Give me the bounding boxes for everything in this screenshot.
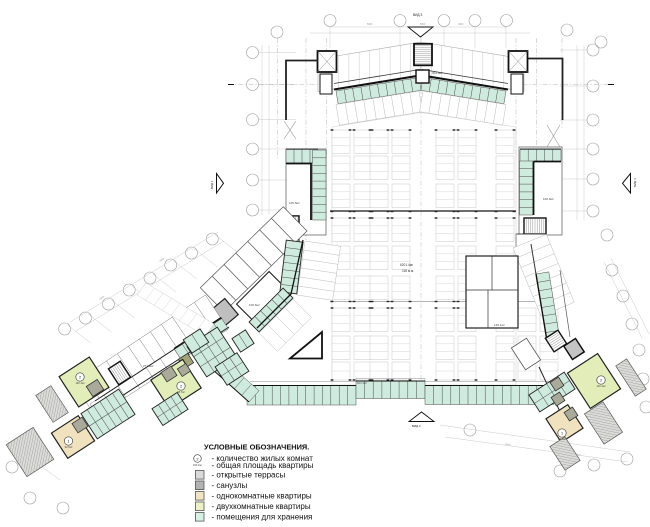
svg-text:624.3м²: 624.3м² [357, 381, 367, 385]
svg-text:- открытые террасы: - открытые террасы [212, 471, 286, 480]
svg-text:5000: 5000 [420, 23, 426, 26]
svg-text:ВИД 1: ВИД 1 [210, 180, 214, 189]
svg-text:2: 2 [180, 385, 182, 389]
svg-text:- помещения для хранения: - помещения для хранения [212, 513, 313, 522]
svg-text:- санузлы: - санузлы [212, 481, 248, 490]
svg-text:100.1м²: 100.1м² [193, 463, 202, 467]
svg-text:- двухкомнатные квартиры: - двухкомнатные квартиры [212, 502, 311, 511]
svg-text:- общая площадь квартиры: - общая площадь квартиры [212, 461, 314, 470]
svg-text:3200: 3200 [458, 23, 464, 26]
svg-text:1: 1 [67, 440, 69, 444]
svg-text:140.4м²: 140.4м² [596, 384, 605, 388]
svg-text:271.2м²: 271.2м² [143, 364, 154, 368]
svg-text:98.7м²: 98.7м² [177, 390, 185, 394]
svg-text:302.4м²: 302.4м² [432, 71, 443, 75]
svg-text:- однокомнатные квартиры: - однокомнатные квартиры [212, 492, 312, 501]
svg-text:ВИД 3: ВИД 3 [413, 13, 422, 17]
svg-text:6201.4м²: 6201.4м² [400, 263, 413, 267]
svg-text:ВИД 2: ВИД 2 [412, 424, 421, 428]
svg-text:105.5м²: 105.5м² [289, 201, 300, 205]
svg-text:140.1м²: 140.1м² [494, 323, 505, 327]
svg-text:100.6м²: 100.6м² [543, 197, 554, 201]
svg-text:2: 2 [600, 379, 602, 383]
svg-text:92.5м²: 92.5м² [558, 437, 566, 441]
svg-text:1: 1 [561, 432, 563, 436]
svg-text:106.6м²: 106.6м² [249, 303, 260, 307]
svg-text:5000: 5000 [367, 23, 373, 26]
svg-text:140.1м²: 140.1м² [75, 381, 84, 385]
svg-text:2: 2 [79, 376, 81, 380]
svg-text:118 м.м.: 118 м.м. [402, 269, 414, 273]
svg-text:ВИД 4: ВИД 4 [633, 178, 637, 187]
svg-text:УСЛОВНЫЕ ОБОЗНАЧЕНИЯ.: УСЛОВНЫЕ ОБОЗНАЧЕНИЯ. [204, 443, 309, 452]
svg-text:92.5м²: 92.5м² [65, 445, 73, 449]
